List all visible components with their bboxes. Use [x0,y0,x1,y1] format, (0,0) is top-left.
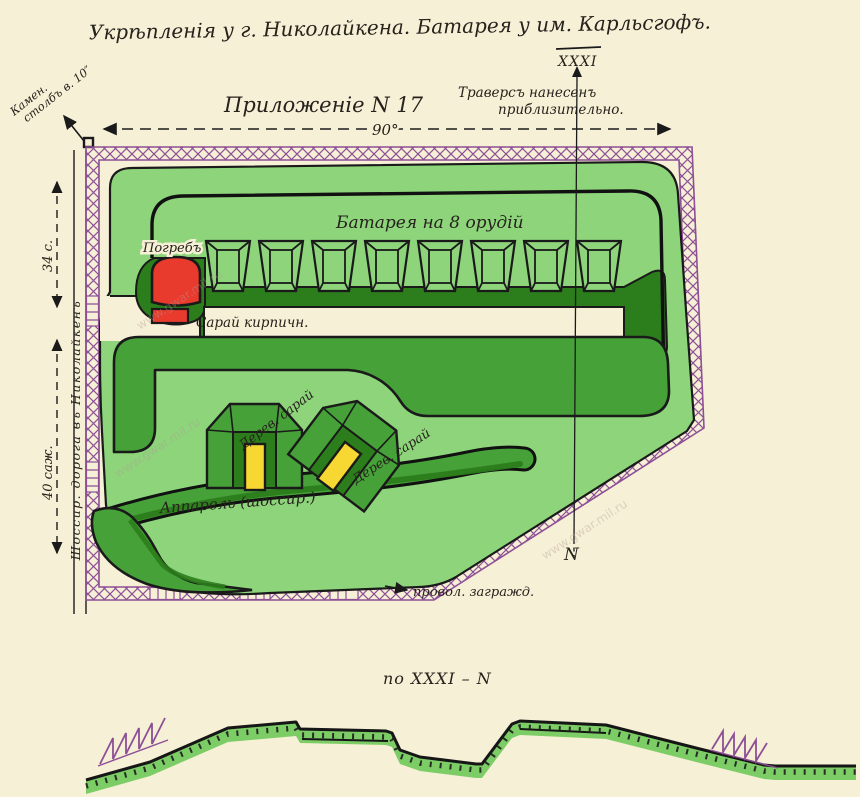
left-upper-dimension-value: 34 с. [41,240,56,272]
cellar-label: Погребъ [142,241,202,256]
gun-emplacement [312,241,356,291]
map-page: Укрѣпленія у г. Николайкена. Батарея у и… [0,0,860,797]
gun-emplacement [577,241,621,291]
brick-shed-label: Сарай кирпичн. [196,315,308,331]
battery-label: Батарея на 8 орудій [335,213,524,233]
road-label: Шоссир. дорога въ Николайкенъ [68,300,83,561]
traverse-note-line2: приблизительно. [498,102,624,118]
highway-road: Шоссир. дорога въ Николайкенъ [68,150,86,614]
appendix-label: Приложеніе N 17 [223,93,424,117]
cross-section-label: по XXXI – N [383,669,492,688]
top-dimension-value: 90° [372,121,399,139]
header: Укрѣпленія у г. Николайкена. Батарея у и… [89,10,711,118]
left-lower-dimension-value: 40 саж. [41,445,56,501]
gun-emplacement [418,241,462,291]
stone-pillar-square [84,138,93,147]
section-marker-overline [556,47,601,49]
traverse-note-line1: Траверсъ нанесенъ [458,85,596,101]
gun-emplacement [365,241,409,291]
fortification-map: Укрѣпленія у г. Николайкена. Батарея у и… [0,0,860,797]
gun-emplacement [524,241,568,291]
page-title: Укрѣпленія у г. Николайкена. Батарея у и… [89,10,711,45]
stone-pillar-note: Камен. столбъ в. 10″ [6,52,94,147]
gun-emplacement [259,241,303,291]
cross-section: по XXXI – N [86,669,856,794]
gun-emplacement [471,241,515,291]
wire-label: провол. загражд. [413,585,534,600]
